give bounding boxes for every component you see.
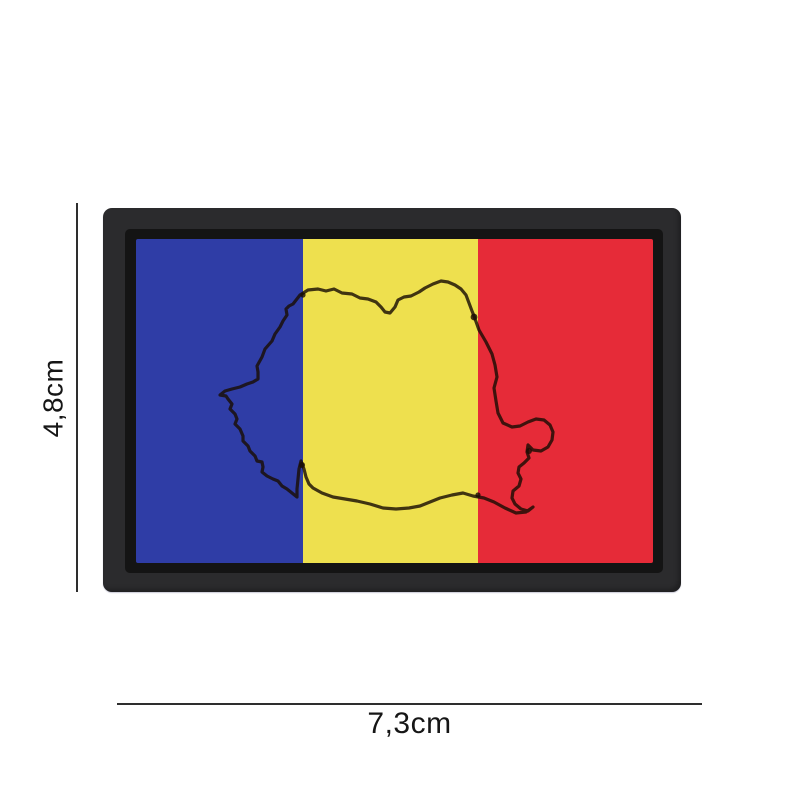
width-dimension-label: 7,3cm: [117, 707, 702, 741]
width-dimension-line: [117, 703, 702, 705]
patch-inner-frame: [125, 229, 663, 573]
flag-stripe-red: [478, 239, 653, 563]
product-image: 4,8cm 7,3cm: [0, 0, 800, 800]
height-dimension-label: 4,8cm: [32, 203, 74, 592]
flag-stripe-blue: [136, 239, 303, 563]
height-dimension-text: 4,8cm: [37, 358, 69, 437]
flag-patch: [103, 208, 681, 592]
height-dimension-line: [76, 203, 78, 592]
flag-stripe-yellow: [303, 239, 478, 563]
romania-flag: [136, 239, 653, 563]
